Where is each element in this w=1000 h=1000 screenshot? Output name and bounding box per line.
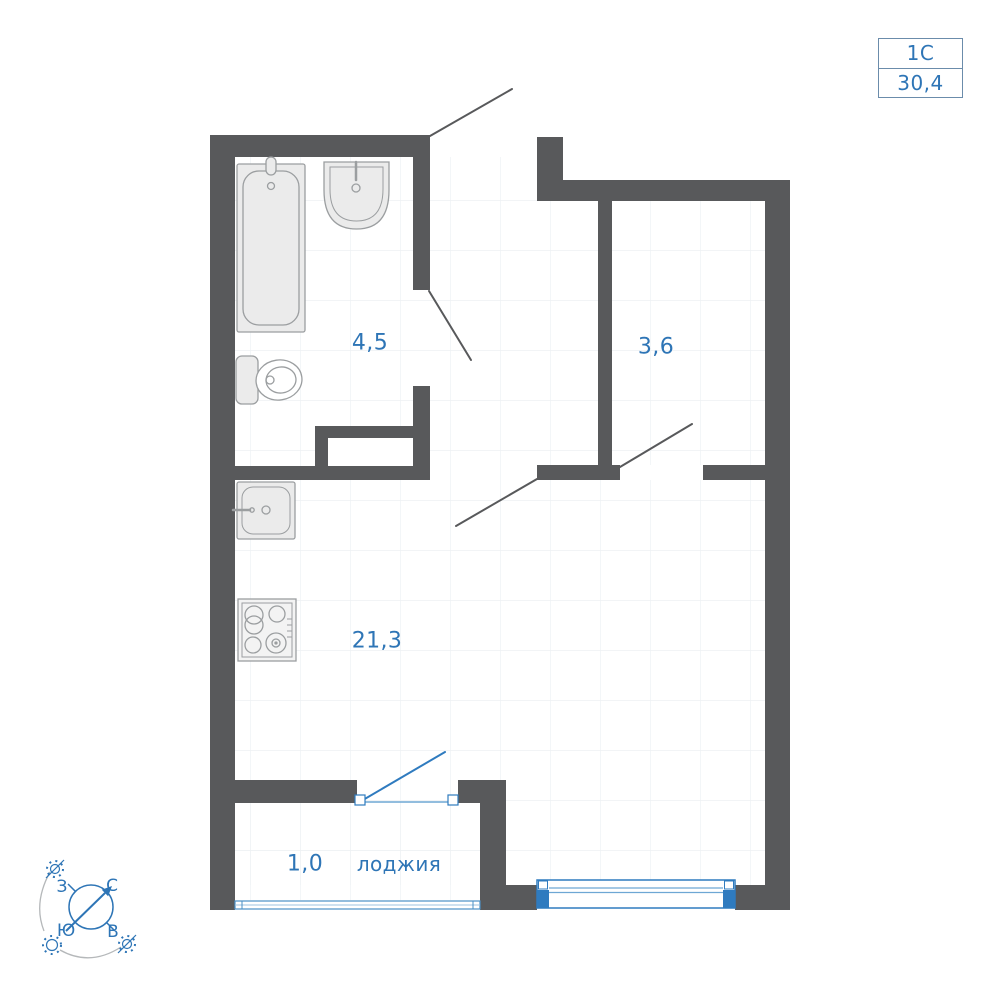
- wall-hallway-left: [598, 200, 612, 480]
- floorplan-canvas: З С Ю В 4,5 3,6 21,3 1,0 лоджия 1С 30,4: [0, 0, 1000, 1000]
- compass-arc-bottom: [60, 947, 121, 958]
- wall-right: [765, 180, 790, 910]
- wall-top-right: [537, 180, 790, 201]
- wall-bottom-left-of-window: [480, 885, 537, 910]
- living-window: [537, 880, 735, 908]
- sun-icon-nw: [46, 860, 64, 878]
- wall-loggia-top-left: [210, 780, 357, 803]
- compass-north-label: С: [106, 876, 118, 896]
- bathtub: [237, 157, 305, 332]
- unit-info-card: 1С 30,4: [878, 38, 963, 98]
- unit-type-code: 1С: [879, 39, 962, 68]
- living-area-label: 21,3: [352, 629, 403, 654]
- loggia-name-label: лоджия: [357, 852, 441, 876]
- loggia-glazing: [235, 901, 480, 909]
- duct-shaft-hole: [328, 438, 413, 468]
- unit-total-area: 30,4: [879, 68, 962, 98]
- compass-west-label: З: [57, 877, 68, 897]
- floorplan-drawing: З С Ю В: [0, 0, 1000, 1000]
- bathroom-area-label: 4,5: [352, 331, 388, 356]
- wall-shaft-top: [315, 426, 430, 438]
- wall-hallway-bottom-left: [537, 465, 620, 480]
- wall-bottom-right-of-window: [735, 885, 790, 910]
- stove: [238, 599, 296, 661]
- wall-bathroom-bottom: [210, 466, 430, 480]
- compass-east-label: В: [107, 922, 119, 942]
- compass-arc-left: [40, 872, 50, 931]
- sun-icon-se: [118, 935, 136, 953]
- compass-rose: З С Ю В: [40, 860, 136, 958]
- compass-south-label: Ю: [57, 921, 75, 941]
- loggia-area-label: 1,0: [287, 852, 323, 877]
- wall-top-bathroom: [210, 135, 430, 157]
- wash-basin: [324, 162, 389, 229]
- wall-hallway-bottom-right: [703, 465, 765, 480]
- kitchen-sink: [233, 482, 295, 539]
- wall-bathroom-right-upper: [413, 157, 430, 290]
- entrance-door-swing: [430, 89, 512, 136]
- hallway-area-label: 3,6: [638, 335, 674, 360]
